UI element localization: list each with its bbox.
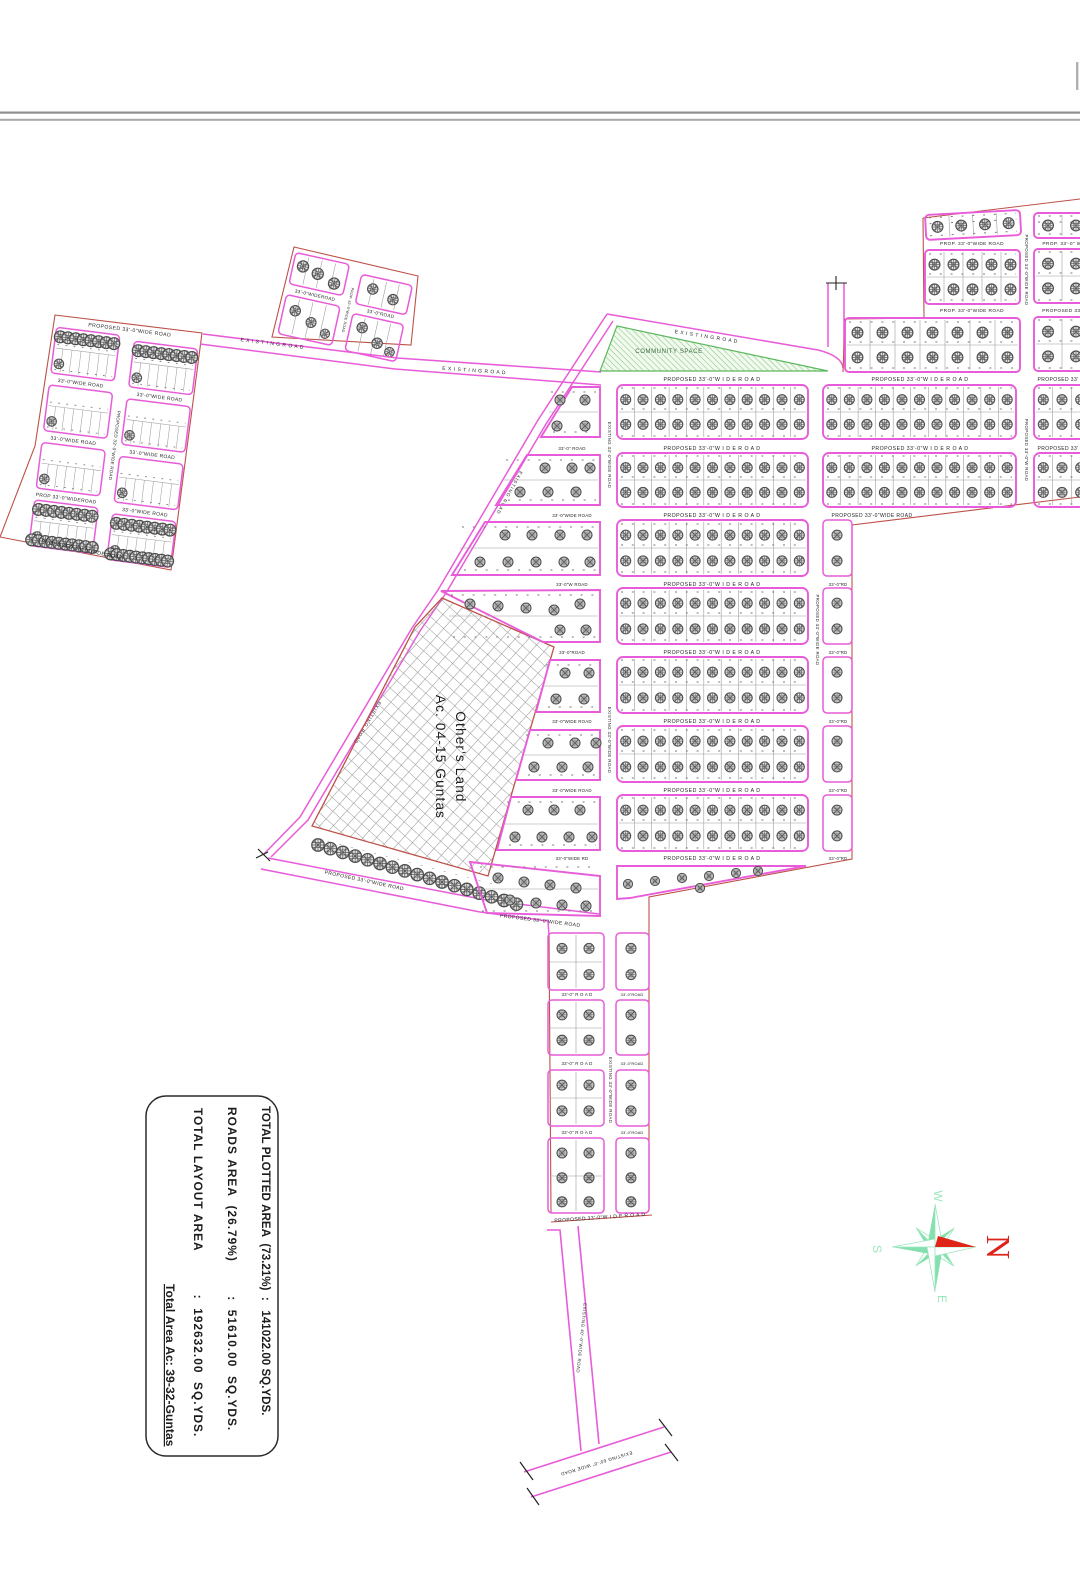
svg-text:PROPOSED 33'-0"W I D E R O A: PROPOSED 33'-0"W I D E R O A D [663, 513, 760, 519]
svg-text:PROPOSED 33'-0"W I D E R O A: PROPOSED 33'-0"W I D E R O A D [663, 377, 760, 383]
svg-text:Ac. 04-15 Guntas: Ac. 04-15 Guntas [433, 695, 448, 819]
svg-text:33'-0"RD: 33'-0"RD [829, 582, 848, 587]
svg-text:33'-0"ROAD: 33'-0"ROAD [621, 1061, 644, 1066]
svg-text:PROPOSED 33'-0"WIDE ROAD: PROPOSED 33'-0"WIDE ROAD [832, 513, 913, 519]
svg-text:33'-0" R O A D: 33'-0" R O A D [561, 1130, 592, 1135]
svg-text:PROPOSED 33'-0"W I D E R O A: PROPOSED 33'-0"W I D E R O A D [663, 446, 760, 452]
svg-text:33'-0" R O A D: 33'-0" R O A D [561, 1061, 592, 1066]
svg-text:PROP. 33'-0" W: PROP. 33'-0" W [1042, 241, 1080, 247]
svg-text:PROPOSED 33'-0"W I D E R O A: PROPOSED 33'-0"W I D E R O A D [663, 650, 760, 656]
svg-text:33'-0"W ROAD: 33'-0"W ROAD [556, 582, 588, 587]
svg-text:PROPOSED 33'-0"W I D E R O A: PROPOSED 33'-0"W I D E R O A D [663, 719, 760, 725]
svg-text:COMMUNITY SPACE: COMMUNITY SPACE [635, 349, 702, 355]
svg-text:PROPOSED 33': PROPOSED 33' [1042, 308, 1080, 314]
svg-text:TOTAL PLOTTED AREA (73.21%): TOTAL PLOTTED AREA (73.21%) : 141022.00 … [259, 1106, 272, 1415]
svg-text:33'-0" ROAD: 33'-0" ROAD [558, 446, 585, 451]
svg-text:Total Area Ac: 39-32-Guntas: Total Area Ac: 39-32-Guntas [163, 1284, 177, 1447]
svg-text:PROPOSED 33'-0"W I D E R O A: PROPOSED 33'-0"W I D E R O A D [663, 788, 760, 794]
svg-text:Other's Land: Other's Land [453, 711, 468, 802]
svg-text:PROPOSED 33'-0"W ROAD: PROPOSED 33'-0"W ROAD [1024, 419, 1029, 482]
svg-text:ROADS AREA (26.79%) :: ROADS AREA (26.79%) : 51610.00 SQ.YDS. [225, 1107, 239, 1431]
svg-text:PROPOSED 33'-0"W I D E R O A: PROPOSED 33'-0"W I D E R O A D [663, 582, 760, 588]
svg-text:33'-0"ROAD: 33'-0"ROAD [559, 650, 585, 655]
svg-text:TOTAL LAYOUT AREA :: TOTAL LAYOUT AREA : 192632.00 SQ.YDS. [191, 1108, 205, 1437]
svg-text:W: W [931, 1190, 945, 1202]
svg-text:E: E [935, 1295, 949, 1303]
svg-text:PROP. 33'-0"WIDE ROAD: PROP. 33'-0"WIDE ROAD [940, 308, 1004, 314]
svg-text:EXISTING 33'-0"WIDE ROAD: EXISTING 33'-0"WIDE ROAD [607, 707, 612, 774]
svg-text:33'-0"RD: 33'-0"RD [829, 856, 848, 861]
svg-text:33'-0"ROAD: 33'-0"ROAD [621, 992, 644, 997]
svg-text:PROPOSED 33'-0"WIDE ROAD: PROPOSED 33'-0"WIDE ROAD [815, 595, 820, 666]
svg-text:PROPOSED 33': PROPOSED 33' [1037, 446, 1078, 452]
svg-text:PROPOSED 33': PROPOSED 33' [1037, 377, 1078, 383]
svg-text:PROPOSED 33'-0"W I D E R O A: PROPOSED 33'-0"W I D E R O A D [663, 856, 760, 862]
svg-text:33'-0"RD: 33'-0"RD [829, 788, 848, 793]
svg-text:33'-0"ROAD: 33'-0"ROAD [621, 1130, 644, 1135]
svg-text:33'-0" R O A D: 33'-0" R O A D [561, 992, 592, 997]
svg-text:S: S [870, 1245, 884, 1253]
svg-text:33'-0"WIDE ROAD: 33'-0"WIDE ROAD [552, 788, 592, 793]
svg-text:PROPOSED 33'-0"WIDE ROAD: PROPOSED 33'-0"WIDE ROAD [1024, 235, 1029, 306]
svg-text:33'-0"RD: 33'-0"RD [829, 719, 848, 724]
svg-text:EXISTING 33'-0"WIDE ROAD: EXISTING 33'-0"WIDE ROAD [607, 422, 612, 489]
svg-text:PROPOSED 33'-0"W I D E R O A: PROPOSED 33'-0"W I D E R O A D [871, 377, 968, 383]
svg-text:EXISTING 33'-0"WIDE ROAD: EXISTING 33'-0"WIDE ROAD [608, 1057, 613, 1124]
svg-text:N: N [979, 1235, 1016, 1260]
svg-text:PROP. 33'-0"WIDE ROAD: PROP. 33'-0"WIDE ROAD [940, 241, 1004, 247]
svg-text:33'-0"WIDE RD: 33'-0"WIDE RD [556, 856, 589, 861]
svg-text:33'-0"RD: 33'-0"RD [829, 650, 848, 655]
svg-text:33'-0"WIDE ROAD: 33'-0"WIDE ROAD [552, 513, 592, 518]
svg-text:33'-0"WIDE ROAD: 33'-0"WIDE ROAD [552, 719, 592, 724]
svg-text:PROPOSED 33'-0"W I D E R O A: PROPOSED 33'-0"W I D E R O A D [871, 446, 968, 452]
